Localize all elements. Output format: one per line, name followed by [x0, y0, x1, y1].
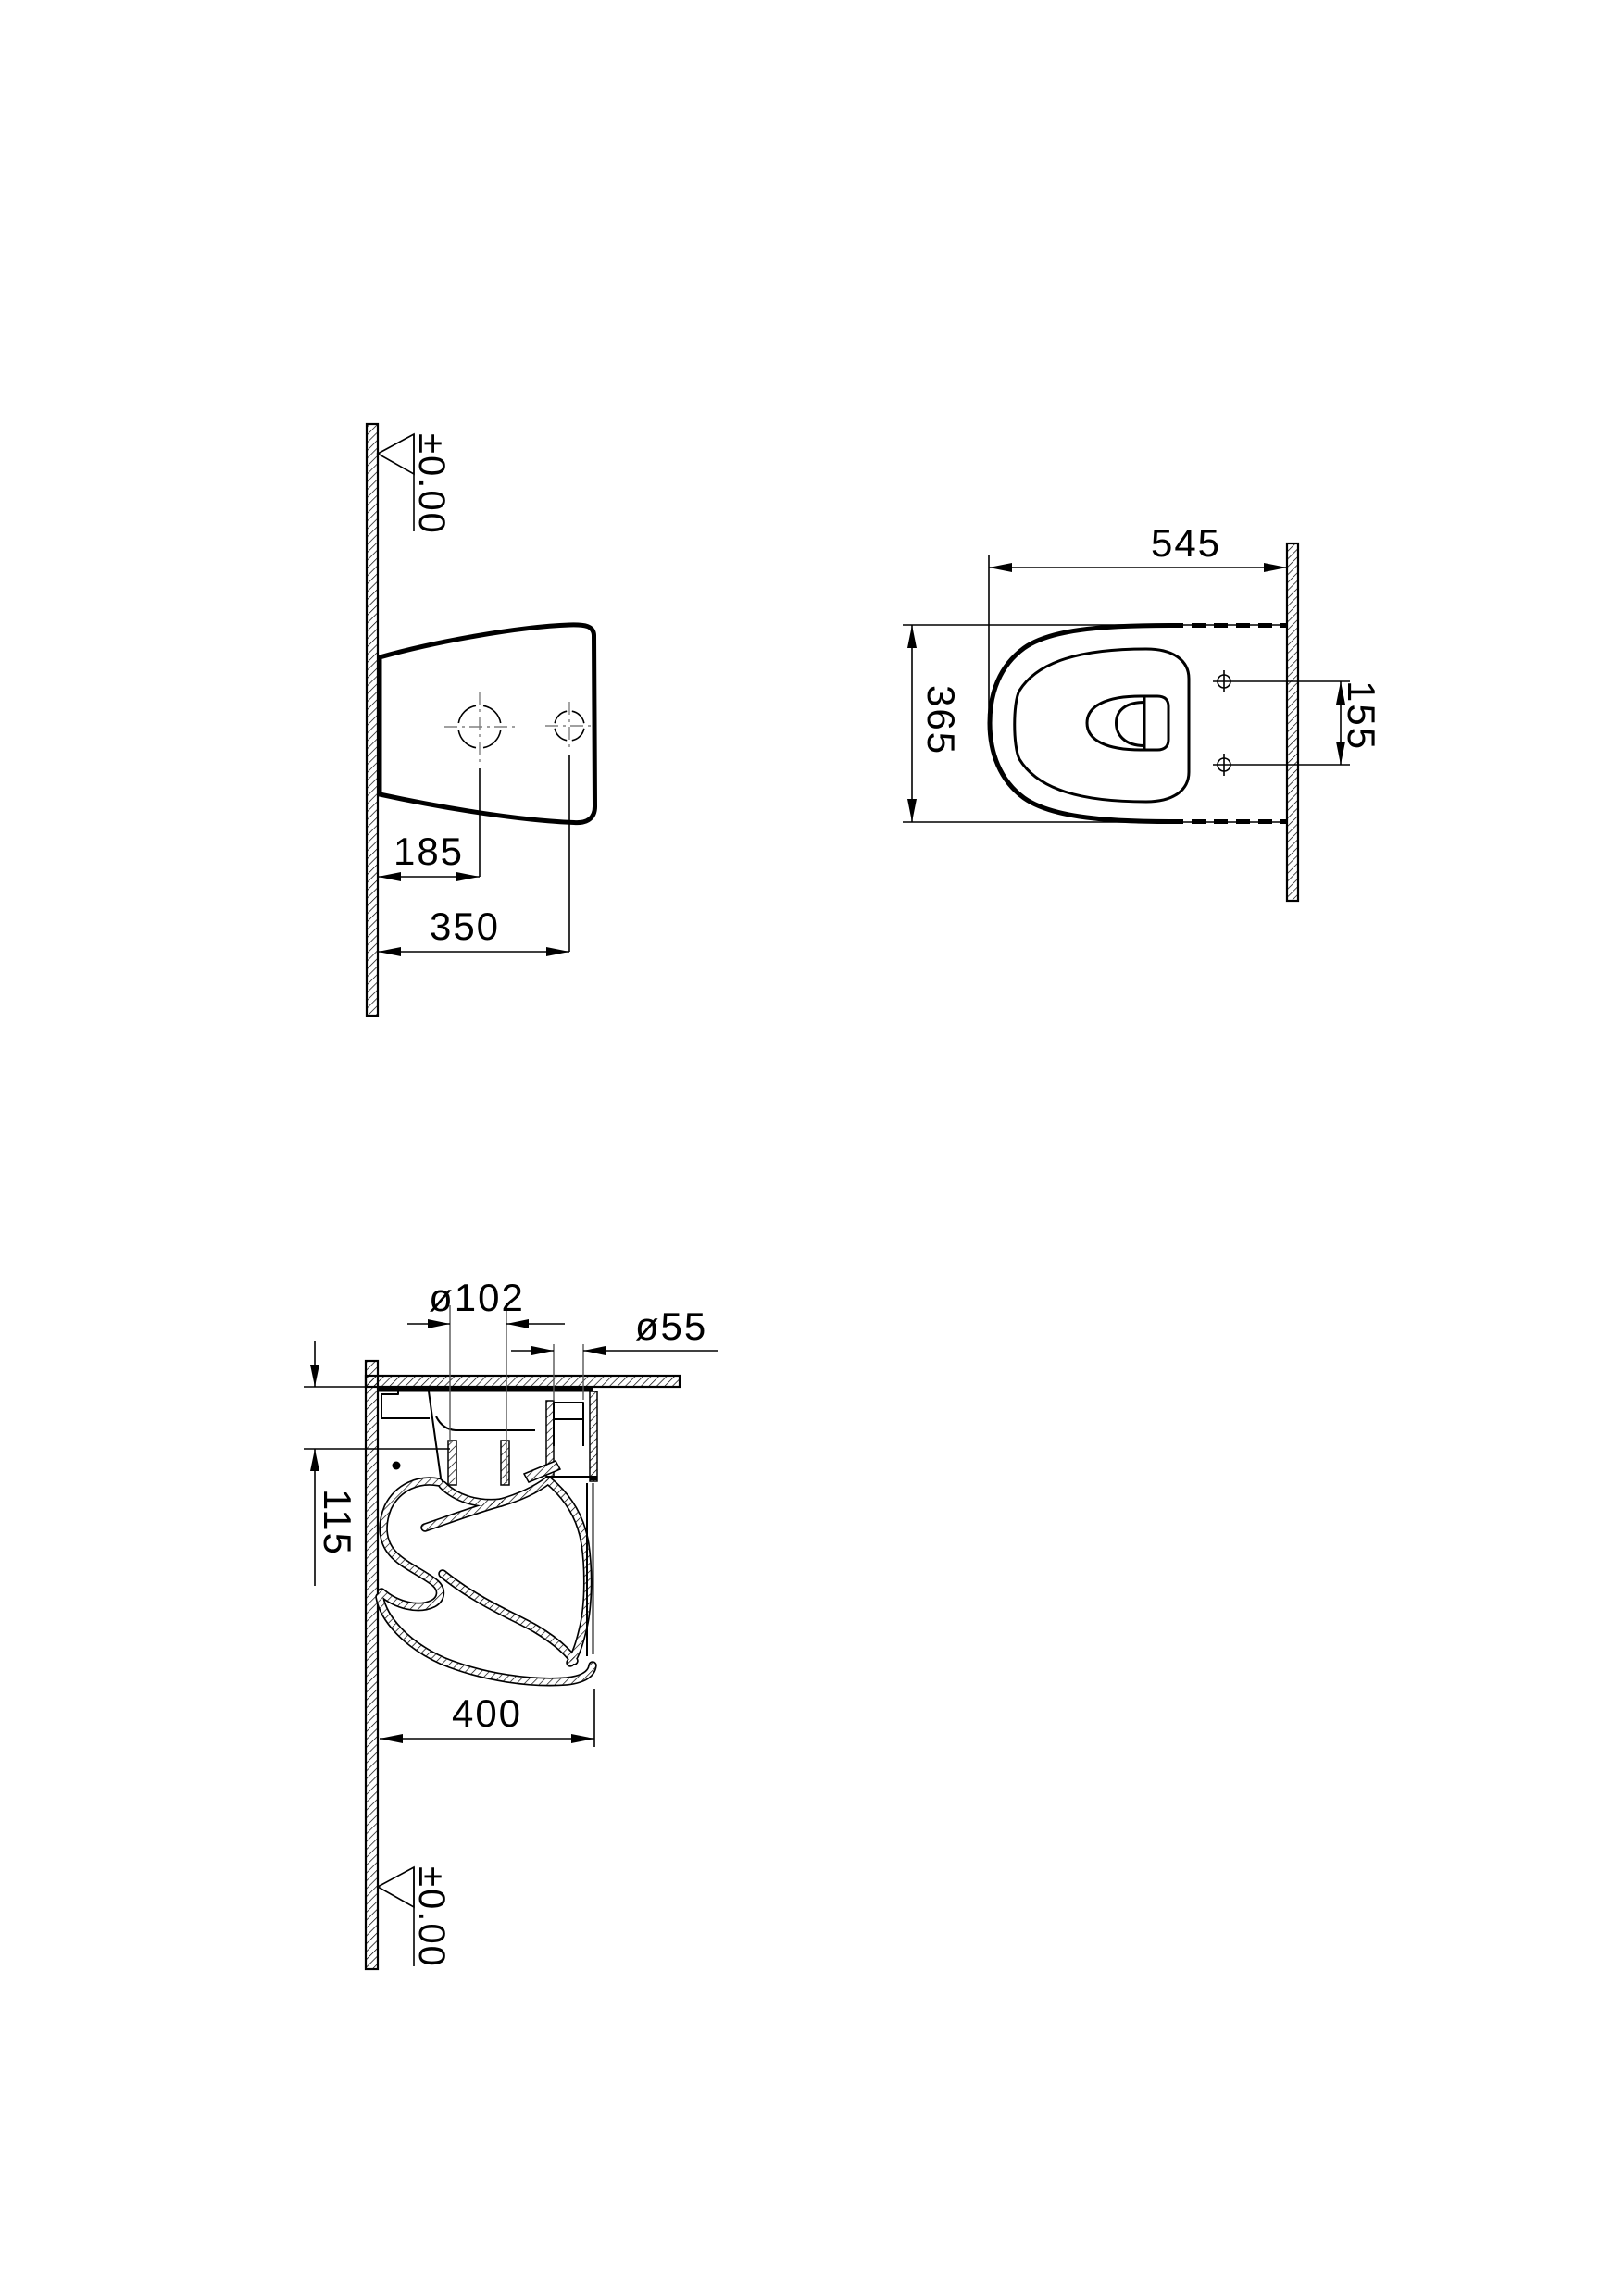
flush-chamber: [381, 1391, 535, 1478]
toilet-side-outline: [380, 625, 595, 823]
wall-section-shelf: [366, 1376, 680, 1387]
drain-outline: [1087, 696, 1168, 750]
dim-label-185: 185: [394, 832, 464, 871]
dimension-365: [907, 625, 917, 822]
dim-label-d55: ø55: [635, 1307, 707, 1346]
section-view: [304, 1305, 718, 1969]
wall-section-vertical: [366, 1361, 378, 1969]
fixing-hole-1: [444, 692, 515, 762]
level-marker-icon: [378, 434, 414, 531]
plan-view: [903, 543, 1350, 901]
fixing-point-dot: [393, 1462, 401, 1470]
drawing-linework: [0, 0, 1624, 2295]
dim-label-400: 400: [452, 1694, 522, 1733]
dim-label-350: 350: [430, 907, 500, 946]
dim-label-155: 155: [1341, 680, 1381, 751]
level-label-side: ±0.00: [411, 433, 452, 535]
fixing-hole-2: [545, 702, 593, 750]
wall-section-plan: [1287, 543, 1298, 901]
mounting-holes: [1218, 670, 1230, 776]
inlet-assembly: [524, 1391, 597, 1482]
dim-label-365: 365: [920, 685, 961, 755]
dim-label-115: 115: [317, 1489, 357, 1556]
dim-label-545: 545: [1151, 524, 1221, 563]
level-marker-icon: [378, 1867, 414, 1966]
technical-drawing-page: 185 350 ±0.00 545 365 155 ø102 ø55 115 4…: [0, 0, 1624, 2295]
wall-section-side: [367, 424, 378, 1016]
ceramic-section-bands: [380, 1480, 593, 1682]
dim-label-d102: ø102: [429, 1278, 525, 1317]
level-label-section: ±0.00: [411, 1866, 452, 1968]
dimension-d102: [407, 1305, 565, 1483]
bowl-rim: [1015, 649, 1189, 802]
dimension-155: [1213, 681, 1350, 765]
